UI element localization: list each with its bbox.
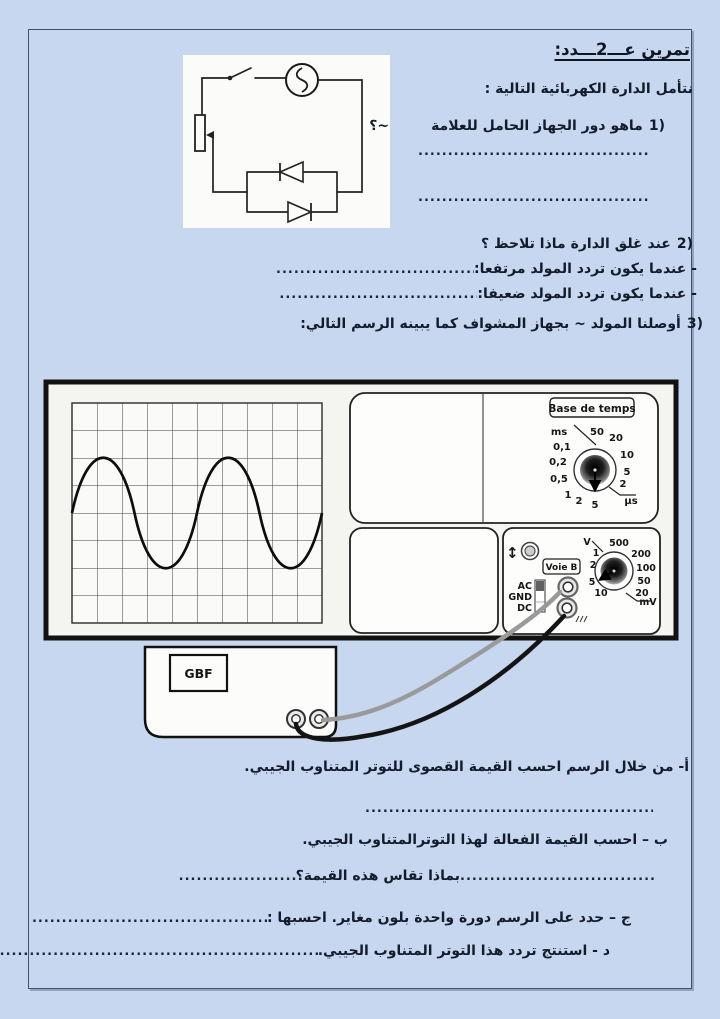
- bnc-connector-top-pin: [563, 582, 573, 592]
- time-label: 0,2: [549, 457, 567, 468]
- question-3-number: 3): [687, 314, 703, 334]
- circuit-diagram-box: [183, 55, 390, 228]
- question-2-number: 2): [677, 234, 693, 254]
- time-label-ms: ms: [551, 427, 567, 438]
- question-2b-text: - عندما يكون تردد المولد ضعيفا:: [477, 284, 697, 304]
- time-knob-center: [593, 468, 596, 471]
- question-c: ج – حدد على الرسم دورة واحدة بلون مغاير.…: [32, 908, 631, 929]
- answer-line-1: ........................................…: [418, 143, 648, 168]
- time-label: 2: [576, 496, 583, 507]
- answer-line-a: ........................................…: [365, 800, 653, 825]
- worksheet-page: { "page": {"bg": "#c7d7ef", "text_color"…: [0, 0, 720, 1019]
- oscilloscope-screen: [72, 403, 322, 623]
- coupling-gnd: GND: [508, 592, 532, 603]
- coupling-switch-knob[interactable]: [536, 581, 544, 591]
- wire: [213, 135, 247, 192]
- time-label: 2: [620, 479, 627, 490]
- question-1-text: ماهو دور الجهاز الحامل للعلامة: [431, 116, 643, 136]
- question-d: د - استنتج تردد هذا التوتر المتناوب الجي…: [0, 941, 610, 962]
- bnc-connector-bottom-pin: [562, 603, 572, 613]
- question-3: 3) أوصلنا المولد ~ بجهاز المشواف كما يبي…: [300, 314, 703, 334]
- question-1-tail: ~؟: [369, 116, 389, 136]
- switch-contact: [228, 76, 233, 81]
- rheostat-tap-arrow: [206, 131, 214, 139]
- blank-panel: [350, 528, 498, 633]
- diode-bottom: [288, 202, 311, 222]
- volt-label-v: V: [583, 537, 591, 548]
- volt-label: 200: [631, 549, 651, 560]
- gbf-generator: GBF: [145, 647, 336, 737]
- base-de-temps-label: Base de temps: [548, 403, 635, 415]
- volt-label: 500: [609, 538, 629, 549]
- circuit-diagram: [183, 55, 390, 228]
- wire: [318, 80, 362, 192]
- coupling-ac: AC: [518, 581, 532, 592]
- question-b2: ........................................…: [167, 866, 655, 887]
- resistor: [195, 115, 205, 151]
- volt-label: 1: [593, 548, 600, 559]
- question-2-text: عند غلق الدارة ماذا تلاحظ ؟: [481, 234, 671, 254]
- volt-label: 2: [590, 560, 597, 571]
- time-label: 0,1: [553, 442, 571, 453]
- switch-lever: [230, 68, 251, 78]
- question-2a-text: - عندما يكون تردد المولد مرتفعا:: [474, 259, 697, 279]
- position-knob[interactable]: [525, 546, 535, 556]
- voie-b-panel: ↕ Voie B AC GND DC V 1 2 5 10 500 20: [503, 528, 660, 634]
- exercise-title: تمرين عـــ2ـــدد:: [554, 38, 690, 62]
- time-label: 5: [624, 467, 631, 478]
- voie-b-label: Voie B: [546, 563, 578, 573]
- question-2: 2) عند غلق الدارة ماذا تلاحظ ؟: [481, 234, 693, 254]
- question-2b: - عندما يكون تردد المولد ضعيفا: ........…: [267, 284, 697, 305]
- time-label: 0,5: [550, 474, 568, 485]
- question-b2-text: بماذا تقاس هذه القيمة؟: [296, 866, 460, 886]
- question-1: 1) ماهو دور الجهاز الحامل للعلامة ~؟: [369, 116, 665, 136]
- time-label: 20: [609, 433, 623, 444]
- question-3-text: أوصلنا المولد ~ بجهاز المشواف كما يبينه …: [300, 314, 681, 334]
- base-de-temps-panel: Base de temps ms 0,1 0,2 0,5 1 2 5 2 5 1…: [350, 393, 658, 523]
- coupling-dc: DC: [517, 603, 532, 614]
- question-2a: - عندما يكون تردد المولد مرتفعا: .......…: [264, 259, 697, 280]
- volt-label-mv: mV: [639, 597, 657, 608]
- question-a: أ- من خلال الرسم احسب القيمة القصوى للتو…: [244, 757, 689, 777]
- oscilloscope-figure: Base de temps ms 0,1 0,2 0,5 1 2 5 2 5 1…: [40, 375, 685, 760]
- time-label: 10: [620, 450, 634, 461]
- diode-top: [280, 162, 303, 182]
- vertical-position-icon: ↕: [506, 544, 519, 562]
- question-b: ب – احسب القيمة الفعالة لهذا التوترالمتن…: [302, 830, 668, 850]
- time-label: 5: [592, 500, 599, 511]
- gbf-label: GBF: [184, 666, 212, 681]
- question-d-text: د - استنتج تردد هذا التوتر المتناوب الجي…: [318, 941, 610, 961]
- time-label: 1: [565, 490, 572, 501]
- volt-label: 100: [636, 563, 656, 574]
- answer-line-2: ........................................…: [418, 189, 648, 214]
- question-c-text: ج – حدد على الرسم دورة واحدة بلون مغاير.…: [267, 908, 631, 928]
- volt-label: 10: [594, 588, 608, 599]
- intro-text: نتأمل الدارة الكهربائية التالية :: [485, 79, 693, 99]
- volt-label: 5: [589, 577, 596, 588]
- question-1-number: 1): [649, 116, 665, 136]
- volt-knob-center: [613, 570, 616, 573]
- time-label: 50: [590, 427, 604, 438]
- volt-label: 50: [637, 576, 651, 587]
- time-label-us: µs: [624, 496, 637, 507]
